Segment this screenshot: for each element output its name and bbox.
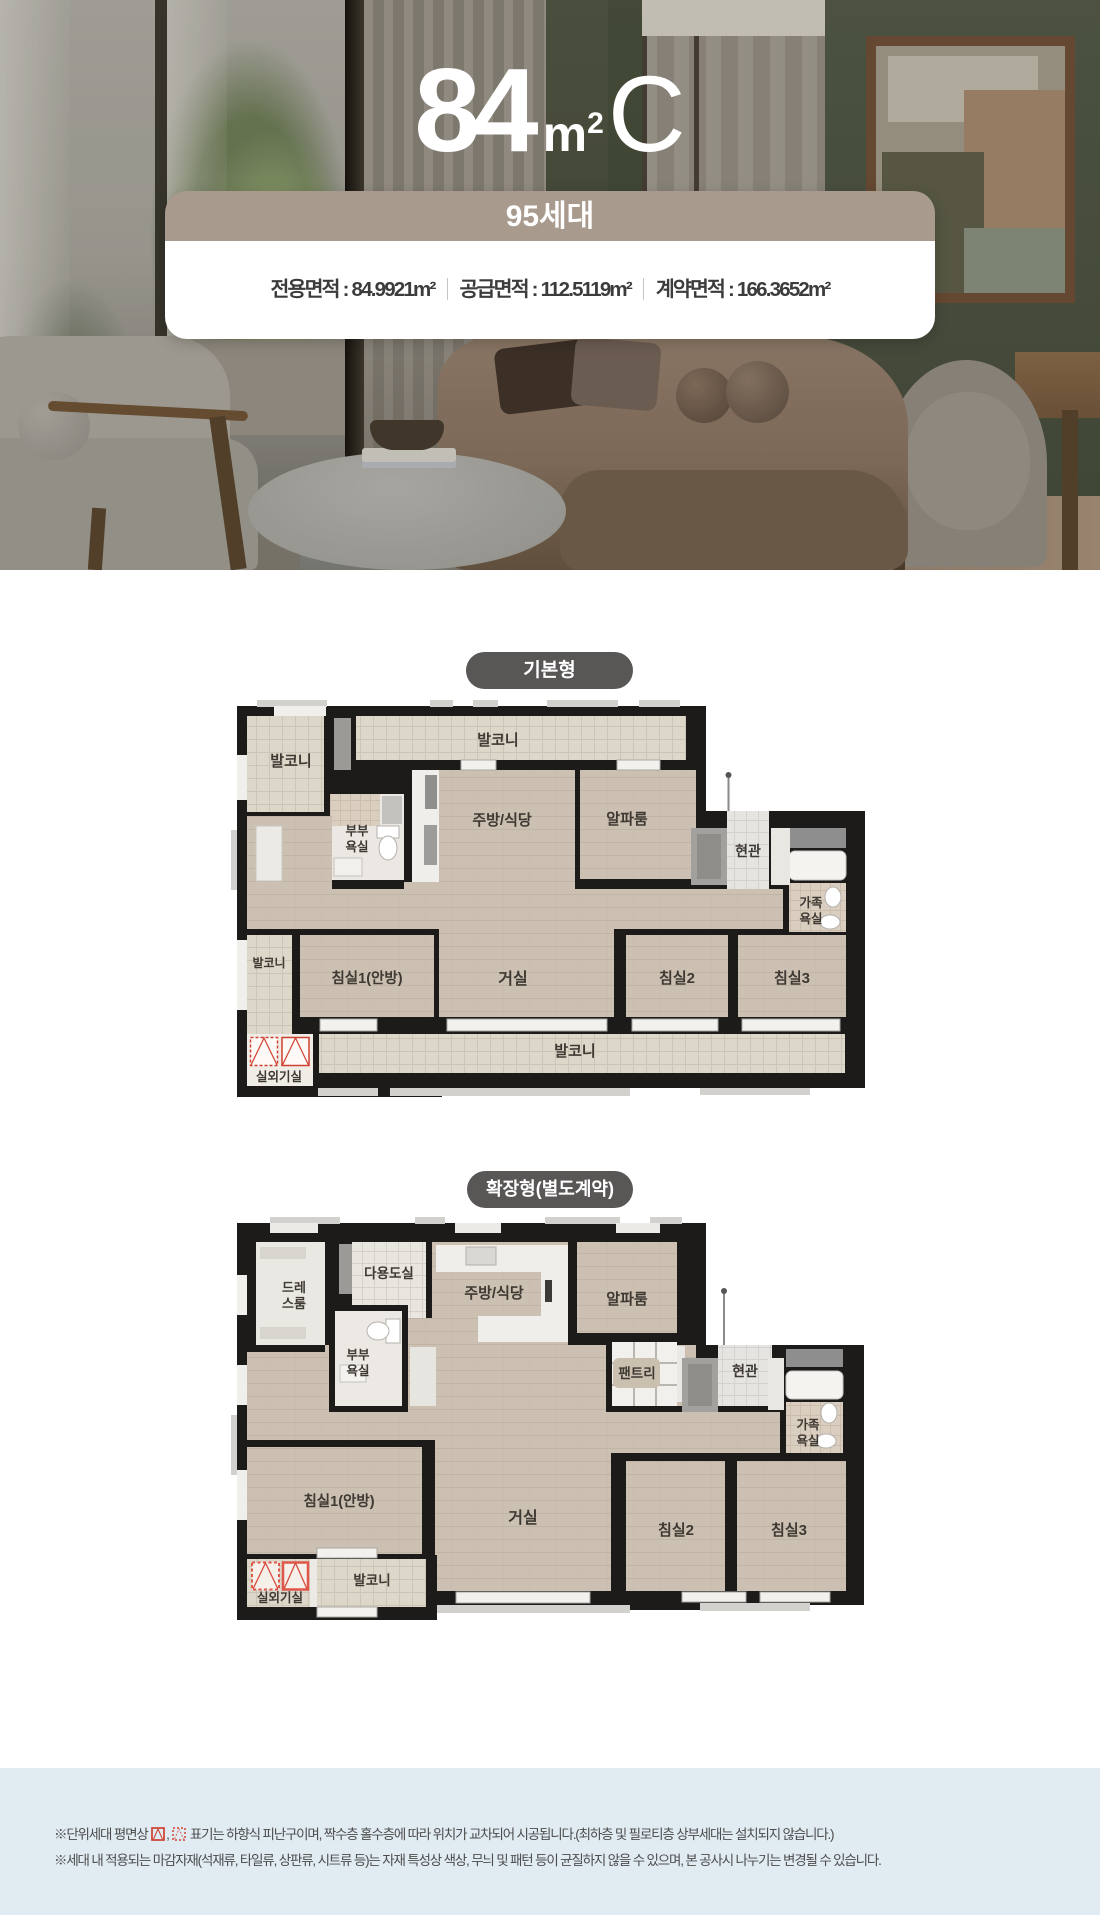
svg-text:부부: 부부 [346, 1348, 370, 1362]
svg-text:현관: 현관 [732, 1363, 758, 1379]
svg-text:침실3: 침실3 [774, 970, 810, 987]
svg-text:발코니: 발코니 [554, 1043, 595, 1060]
svg-text:침실1(안방): 침실1(안방) [331, 969, 402, 987]
svg-text:현관: 현관 [735, 843, 761, 859]
svg-text:실외기실: 실외기실 [257, 1590, 303, 1605]
svg-text:실외기실: 실외기실 [256, 1069, 302, 1084]
svg-text:발코니: 발코니 [477, 732, 518, 749]
svg-text:드레: 드레 [282, 1280, 306, 1295]
svg-text:발코니: 발코니 [353, 1572, 390, 1588]
svg-text:욕실: 욕실 [796, 1433, 819, 1448]
svg-text:주방/식당: 주방/식당 [472, 811, 532, 829]
svg-text:발코니: 발코니 [270, 753, 311, 770]
svg-text:침실1(안방): 침실1(안방) [303, 1492, 374, 1510]
svg-text:거실: 거실 [498, 970, 527, 988]
svg-text:욕실: 욕실 [799, 911, 822, 926]
svg-text:욕실: 욕실 [346, 1363, 369, 1378]
svg-text:침실2: 침실2 [658, 1522, 694, 1539]
svg-text:거실: 거실 [508, 1509, 537, 1527]
svg-text:침실3: 침실3 [771, 1522, 807, 1539]
svg-text:스룸: 스룸 [282, 1296, 306, 1311]
svg-text:부부: 부부 [345, 824, 369, 838]
svg-text:발코니: 발코니 [252, 955, 285, 970]
svg-text:팬트리: 팬트리 [618, 1366, 655, 1381]
svg-text:욕실: 욕실 [345, 839, 368, 854]
svg-text:가족: 가족 [796, 1417, 820, 1432]
svg-text:침실2: 침실2 [659, 970, 695, 987]
svg-text:다용도실: 다용도실 [364, 1266, 414, 1281]
svg-text:가족: 가족 [799, 895, 823, 910]
svg-text:알파룸: 알파룸 [606, 811, 648, 828]
svg-text:주방/식당: 주방/식당 [464, 1284, 524, 1302]
svg-text:알파룸: 알파룸 [606, 1291, 648, 1308]
